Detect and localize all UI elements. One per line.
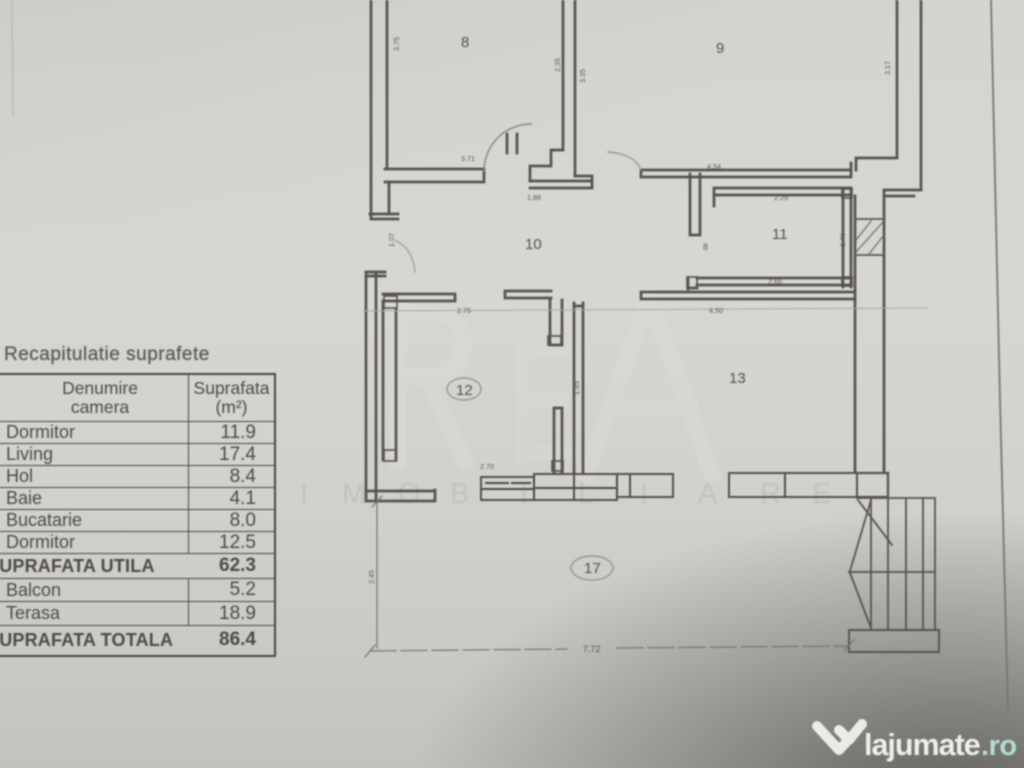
svg-text:1.40: 1.40: [838, 233, 847, 247]
svg-text:8: 8: [461, 34, 469, 51]
svg-text:10: 10: [525, 236, 542, 253]
svg-text:2.45: 2.45: [367, 570, 376, 584]
svg-text:2.35: 2.35: [553, 58, 562, 72]
svg-text:3.35: 3.35: [578, 69, 587, 83]
svg-text:R: R: [760, 478, 781, 510]
svg-text:2.66: 2.66: [768, 277, 782, 286]
svg-text:2.75: 2.75: [457, 306, 471, 315]
svg-text:4.54: 4.54: [707, 162, 721, 171]
svg-text:1.45: 1.45: [572, 381, 581, 395]
svg-text:9: 9: [716, 40, 724, 57]
svg-text:I: I: [300, 478, 308, 510]
svg-text:.ro: .ro: [981, 730, 1017, 762]
svg-text:3.17: 3.17: [883, 61, 892, 75]
svg-text:12: 12: [456, 382, 473, 399]
svg-text:lajumate: lajumate: [864, 728, 980, 762]
svg-text:M: M: [342, 478, 366, 510]
svg-text:1.07: 1.07: [387, 233, 396, 247]
svg-text:I: I: [640, 478, 648, 510]
svg-text:3.75: 3.75: [392, 37, 401, 51]
svg-text:E: E: [812, 478, 831, 510]
svg-text:L: L: [578, 478, 594, 510]
svg-text:3.71: 3.71: [461, 154, 475, 163]
svg-text:A: A: [698, 478, 718, 510]
svg-text:7.72: 7.72: [583, 644, 601, 654]
svg-text:13: 13: [729, 370, 746, 387]
svg-text:1.88: 1.88: [527, 193, 541, 202]
svg-text:2.29: 2.29: [774, 193, 788, 202]
svg-text:O: O: [398, 478, 421, 510]
svg-text:4.50: 4.50: [709, 306, 723, 315]
svg-text:2.70: 2.70: [480, 462, 494, 471]
svg-text:11: 11: [772, 226, 788, 243]
svg-text:B: B: [450, 478, 469, 510]
svg-text:17: 17: [584, 560, 601, 577]
svg-text:8: 8: [703, 242, 708, 252]
